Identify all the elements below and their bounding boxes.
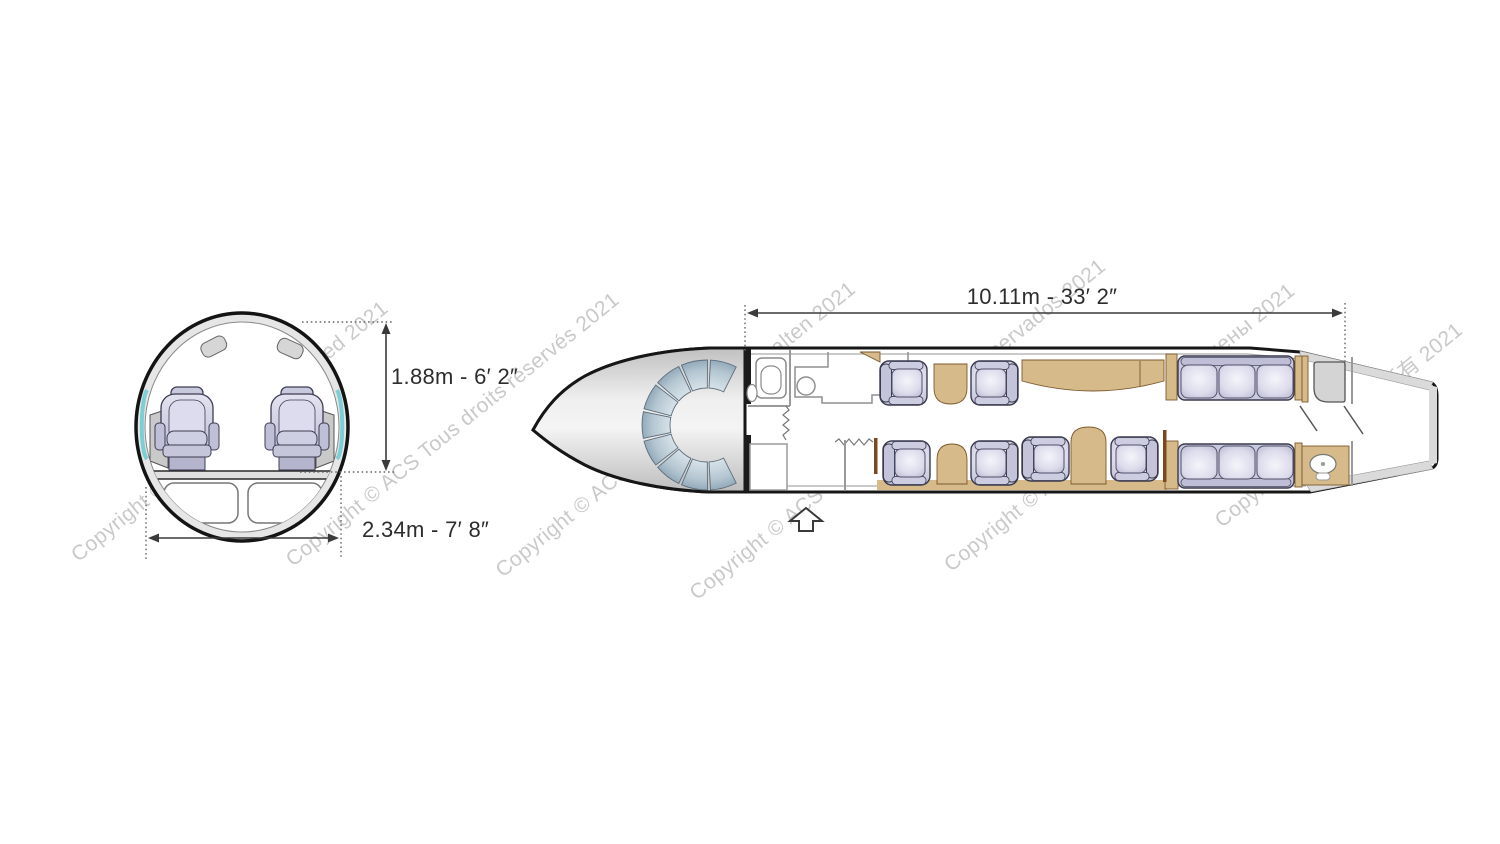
diagram-canvas <box>0 0 1500 844</box>
aft-nook-panel <box>1302 356 1308 402</box>
divan-end-panel <box>1165 441 1178 489</box>
aft-cabinet <box>1071 427 1106 484</box>
side-table-top <box>934 364 967 404</box>
side-table-bottom <box>937 444 967 484</box>
aircraft-layout-diagram: Copyright © ACS All rights reserved 2021… <box>0 0 1500 844</box>
cabin-floor-plan <box>533 303 1437 531</box>
club-chair-3 <box>883 441 930 485</box>
divan-top <box>1178 356 1294 400</box>
club-chair-2 <box>971 361 1018 405</box>
cabin-width-label: 2.34m - 7′ 8″ <box>362 517 489 543</box>
club-chair-4 <box>971 441 1018 485</box>
tail-wall-end <box>1429 385 1437 465</box>
divan-end-panel <box>1295 356 1302 400</box>
aft-cabinet-top <box>1314 362 1345 402</box>
entry-door-arrow <box>790 508 822 531</box>
door-post <box>874 438 878 474</box>
door-post <box>1163 430 1167 482</box>
lav-sink <box>747 385 757 402</box>
club-chair-6 <box>1111 437 1158 481</box>
club-chair-1 <box>880 361 927 405</box>
divan-bottom <box>1178 444 1294 488</box>
club-chair-5 <box>1022 437 1069 481</box>
fuselage-cross-section <box>136 313 394 559</box>
cabin-height-label: 1.88m - 6′ 2″ <box>391 364 518 390</box>
forward-closet <box>750 444 787 490</box>
credenza <box>1022 360 1164 391</box>
divan-end-panel <box>1295 443 1302 487</box>
divan-end-panel <box>1166 354 1177 400</box>
cabin-length-label: 10.11m - 33′ 2″ <box>967 284 1118 310</box>
